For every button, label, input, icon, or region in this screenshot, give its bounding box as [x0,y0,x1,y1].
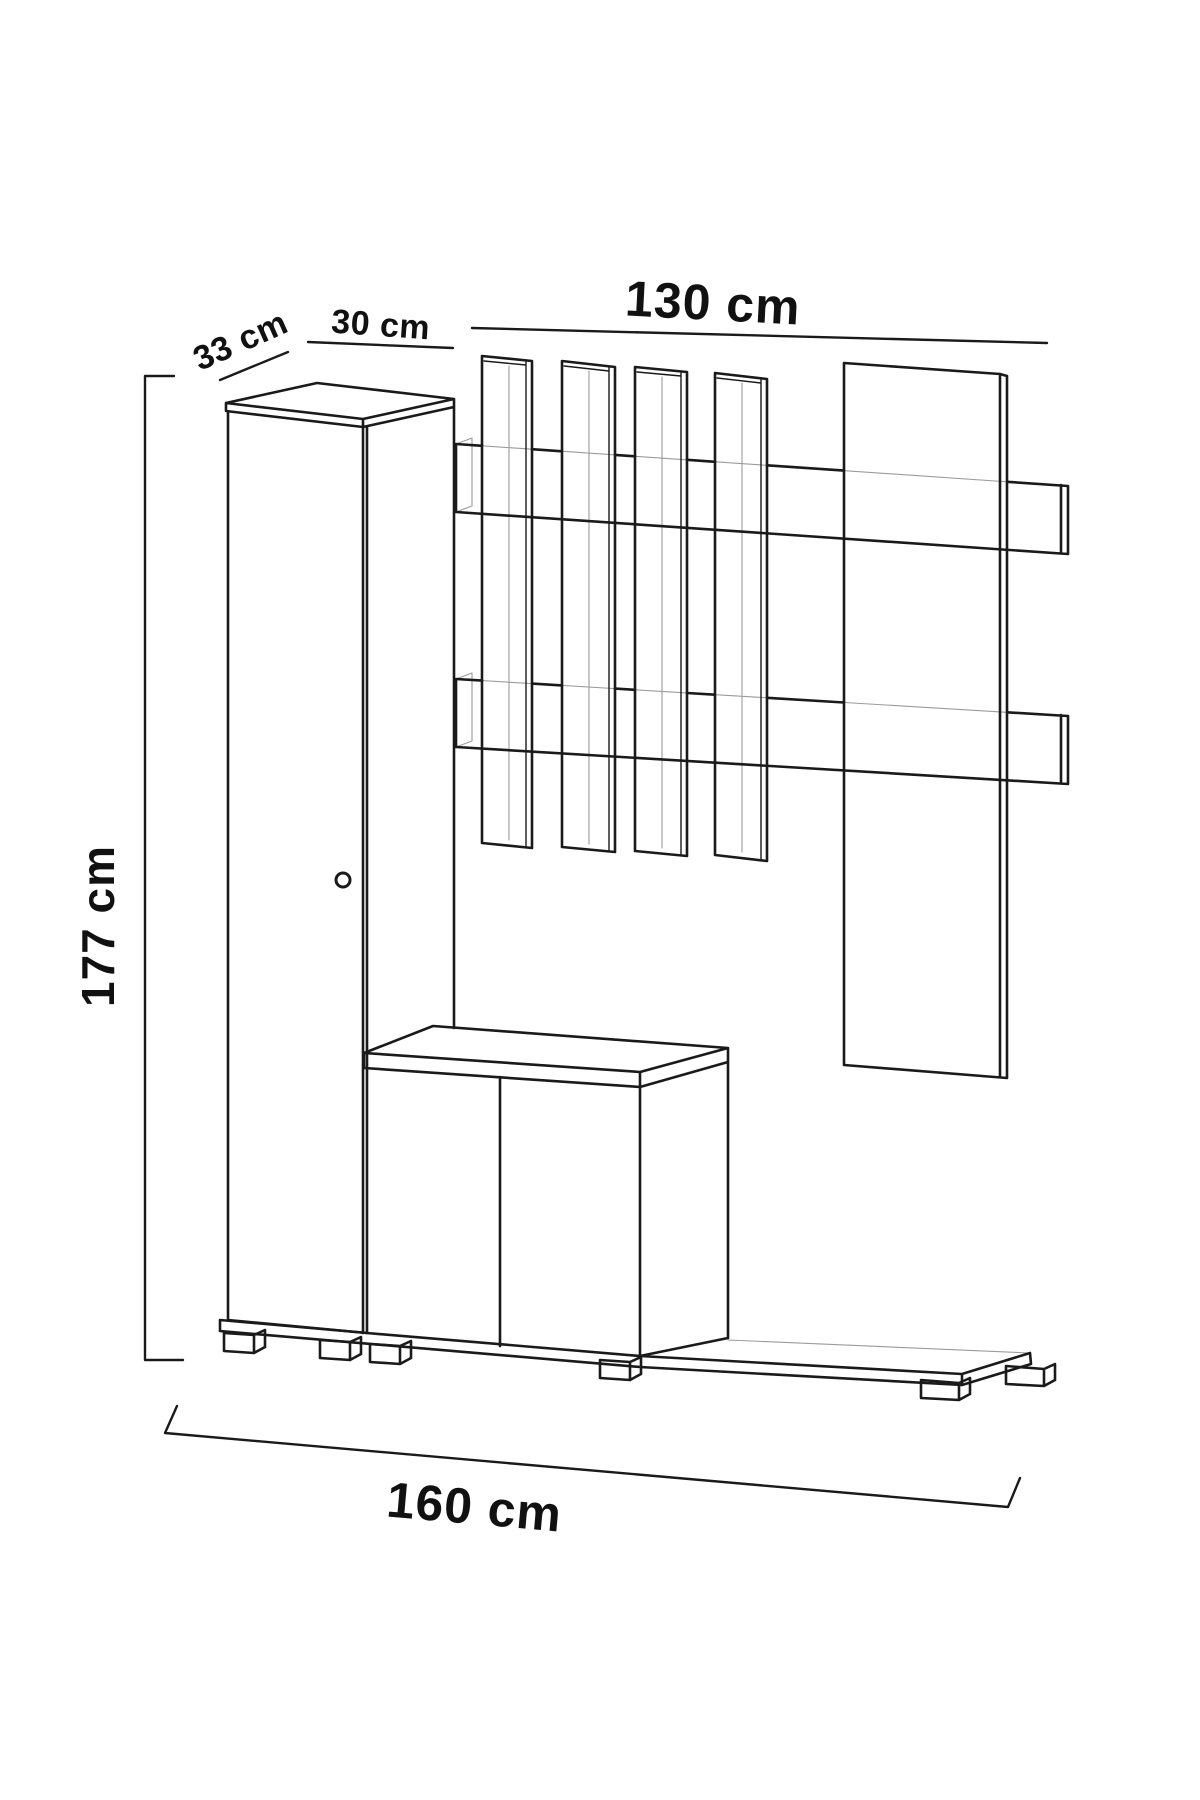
rack-thickness-edges [484,361,761,861]
rack-width-dimension-label: 130 cm [624,270,802,335]
total-width-dimension-label: 160 cm [385,1472,565,1543]
diagram-page: 177 cm 33 cm 30 cm 130 cm 160 cm [0,0,1200,1800]
door-knob [336,873,350,887]
coat-rack-panel [456,356,1068,1078]
dimension-depth: 33 cm [188,303,294,380]
dimension-rack-width: 130 cm [472,270,1047,343]
tall-cabinet-outline [226,383,454,1333]
plinth-back-edge [728,1340,1030,1353]
shoe-cabinet [364,1026,728,1356]
plinth-outline [220,1320,1031,1385]
rack-slats [482,356,767,861]
dimension-total-width: 160 cm [165,1406,1020,1543]
depth-dimension-label: 33 cm [188,303,294,378]
dimension-height: 177 cm [72,376,183,1360]
drawing-canvas: 177 cm 33 cm 30 cm 130 cm 160 cm [0,0,1200,1800]
tall-cabinet [226,383,454,1333]
base-plinth [220,1320,1055,1400]
shoe-cabinet-outline [364,1026,728,1356]
total-width-dimension-line [165,1406,1020,1507]
height-dimension-label: 177 cm [72,845,124,1007]
dimension-cabinet-width: 30 cm [308,303,453,348]
height-dimension-line [145,376,183,1360]
cabinet-width-dimension-label: 30 cm [330,303,431,348]
rack-wide-board [844,363,1007,1078]
rack-rails [456,444,1068,784]
